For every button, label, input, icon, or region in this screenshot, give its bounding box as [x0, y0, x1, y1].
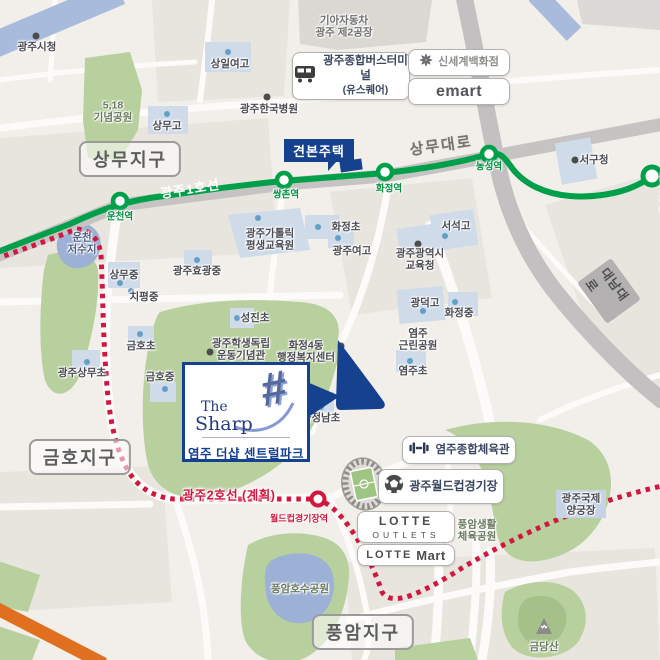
callout-pointer [307, 382, 340, 418]
soccer-ball-icon [384, 474, 404, 499]
bus-icon [293, 64, 317, 89]
line2-station-circle [312, 493, 325, 506]
emart-label: emart [436, 82, 482, 102]
lotte-mart-word: Mart [416, 548, 445, 563]
bus-terminal-name: 광주종합버스터미널 [323, 55, 408, 81]
lotte-outlets-word: OUTLETS [372, 530, 439, 540]
lotte-mart-box: LOTTE Mart [357, 544, 455, 566]
bus-terminal-box: 광주종합버스터미널 (유스퀘어) [292, 52, 410, 100]
district-geumho: 금호지구 [29, 439, 131, 475]
the-sharp-callout: # The Sharp 염주 더샵 센트럴파크 [182, 362, 310, 462]
emart-box: emart [408, 78, 510, 105]
bus-terminal-subname: (유스퀘어) [343, 84, 389, 96]
lotte-outlets-box: LOTTE OUTLETS [357, 511, 455, 543]
dumbbell-icon [408, 440, 430, 461]
shinsegae-flower-icon [419, 53, 433, 72]
district-pungam: 풍암지구 [312, 614, 414, 650]
gym-label: 염주종합체육관 [435, 443, 509, 457]
worldcup-stadium-box: 광주월드컵경기장 [378, 469, 504, 504]
lotte-mart-brand: LOTTE [366, 548, 412, 562]
model-house-flag: 견본주택 [284, 139, 354, 162]
shinsegae-label: 신세계백화점 [438, 56, 499, 70]
logo-divider [202, 437, 290, 438]
sharp-logo-sharp: Sharp [195, 413, 253, 435]
lotte-outlets-brand: LOTTE [379, 514, 433, 530]
district-sangmu: 상무지구 [79, 141, 181, 177]
worldcup-stadium-label: 광주월드컵경기장 [409, 479, 497, 494]
shinsegae-box: 신세계백화점 [408, 49, 510, 76]
gym-box: 염주종합체육관 [402, 436, 516, 464]
location-map: 광주시청 5,18 기념공원 상일여고 상무고 광주한국병원 기아자동차 광주 … [0, 0, 660, 660]
complex-name: 염주 더샵 센트럴파크 [185, 443, 307, 462]
